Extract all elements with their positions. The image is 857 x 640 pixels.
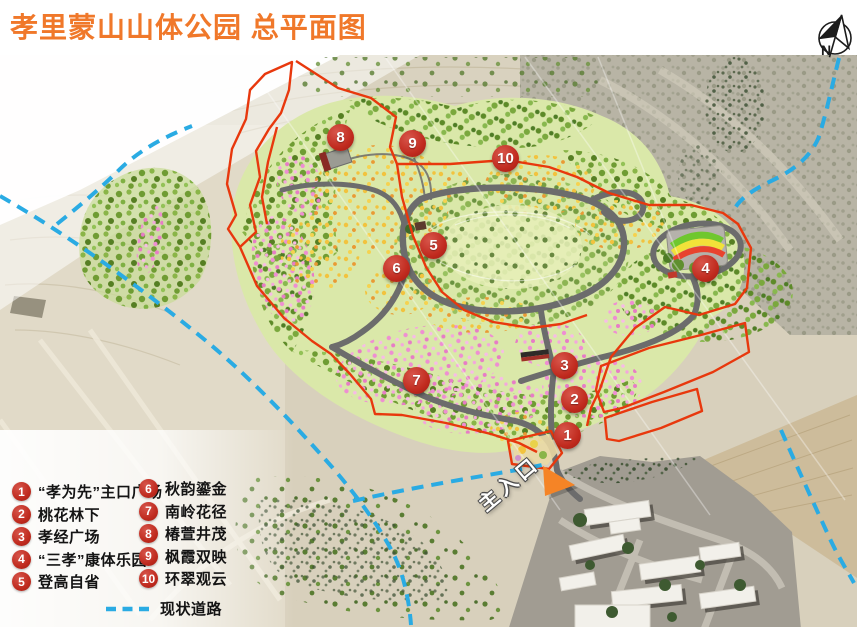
map-marker-4: 4	[692, 255, 719, 282]
legend-label-3: 孝经广场	[38, 526, 100, 547]
map-marker-1: 1	[554, 422, 581, 449]
legend-item-10: 10 环翠观云	[139, 568, 227, 589]
legend-label-5: 登高自省	[38, 571, 100, 592]
map-marker-8: 8	[327, 124, 354, 151]
map-marker-3: 3	[551, 352, 578, 379]
legend-badge-7: 7	[139, 502, 158, 521]
map-marker-2: 2	[561, 386, 588, 413]
existing-road-dash-sample	[104, 604, 152, 614]
legend-item-6: 6 秋韵鎏金	[139, 478, 227, 499]
legend-item-8: 8 椿萱井茂	[139, 523, 227, 544]
legend-item-9: 9 枫霞双映	[139, 546, 227, 567]
north-letter: N	[821, 42, 831, 58]
page-title: 孝里蒙山山体公园 总平面图	[10, 6, 367, 46]
legend-badge-5: 5	[12, 572, 31, 591]
legend-label-6: 秋韵鎏金	[165, 478, 227, 499]
legend-badge-6: 6	[139, 479, 158, 498]
legend-label-10: 环翠观云	[165, 568, 227, 589]
legend-badge-4: 4	[12, 550, 31, 569]
map-marker-5: 5	[420, 232, 447, 259]
legend-badge-1: 1	[12, 482, 31, 501]
legend-label-2: 桃花林下	[38, 504, 100, 525]
map-marker-10: 10	[492, 145, 519, 172]
legend-badge-3: 3	[12, 527, 31, 546]
legend-label-8: 椿萱井茂	[165, 523, 227, 544]
master-plan-page: 孝里蒙山山体公园 总平面图 N 1 2 3 4 5 6 7 8 9 10 主入口…	[0, 0, 857, 640]
legend-existing-road: 现状道路	[104, 598, 222, 619]
north-arrow-icon: N	[808, 8, 857, 64]
map-marker-7: 7	[403, 367, 430, 394]
map-marker-6: 6	[383, 255, 410, 282]
legend-item-7: 7 南岭花径	[139, 501, 227, 522]
legend: 1 “孝为先”主口广场 2 桃花林下 3 孝经广场 4 “三孝”康体乐园 5 登…	[8, 476, 268, 626]
legend-badge-9: 9	[139, 547, 158, 566]
legend-label-7: 南岭花径	[165, 501, 227, 522]
legend-label-9: 枫霞双映	[165, 546, 227, 567]
legend-badge-8: 8	[139, 524, 158, 543]
existing-road-label: 现状道路	[160, 598, 222, 619]
legend-column-2: 6 秋韵鎏金 7 南岭花径 8 椿萱井茂 9 枫霞双映 10 环翠观云	[139, 478, 227, 591]
legend-badge-2: 2	[12, 505, 31, 524]
map-marker-9: 9	[399, 130, 426, 157]
legend-badge-10: 10	[139, 569, 158, 588]
legend-label-4: “三孝”康体乐园	[38, 549, 147, 570]
